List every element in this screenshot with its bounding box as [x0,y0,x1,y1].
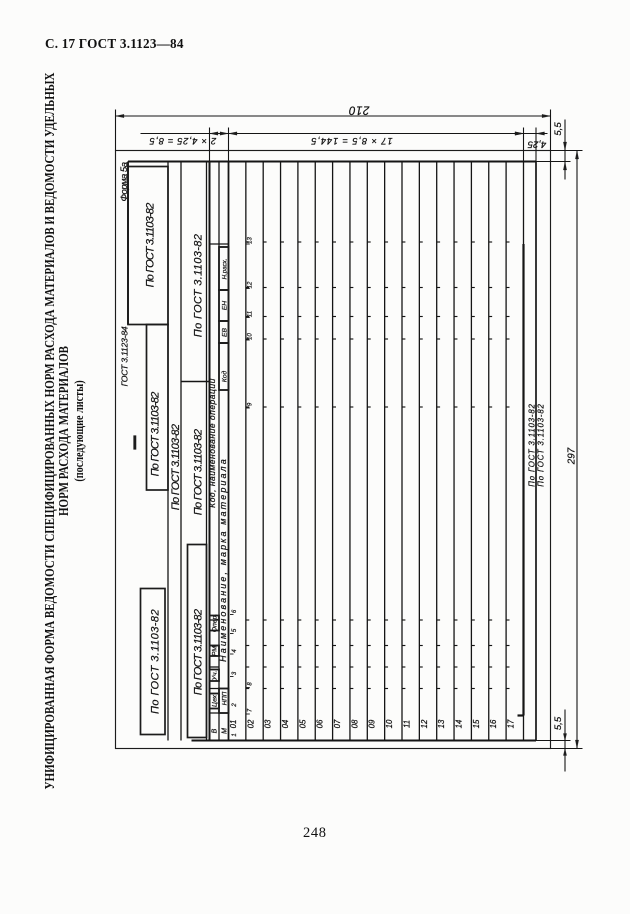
svg-text:03: 03 [264,719,273,728]
svg-text:Код, наименование операции: Код, наименование операции [207,378,217,508]
svg-text:297: 297 [567,447,578,465]
svg-text:16: 16 [489,719,498,728]
svg-text:12: 12 [248,281,254,288]
svg-text:По ГОСТ 3.1103-82: По ГОСТ 3.1103-82 [192,234,204,337]
svg-text:Наименование, марка материала: Наименование, марка материала [218,457,228,662]
svg-text:17 × 8,5 = 144,5: 17 × 8,5 = 144,5 [310,136,392,146]
svg-text:По ГОСТ 3.1103-82: По ГОСТ 3.1103-82 [145,203,157,287]
svg-text:Форма 5а: Форма 5а [119,162,130,201]
svg-text:В: В [212,728,219,733]
svg-text:По ГОСТ 3.1103-82: По ГОСТ 3.1103-82 [527,403,536,487]
svg-text:Код: Код [221,370,229,382]
svg-text:6: 6 [232,609,238,613]
svg-text:ЕВ: ЕВ [222,328,229,338]
svg-text:Уч.: Уч. [212,671,219,682]
svg-text:3: 3 [232,671,238,675]
svg-text:2 × 4,25 = 8,5: 2 × 4,25 = 8,5 [149,136,217,146]
svg-text:9: 9 [248,402,254,406]
svg-text:7: 7 [248,708,254,712]
svg-text:Н.расх.: Н.расх. [222,259,229,280]
svg-text:По ГОСТ 3.1103-82: По ГОСТ 3.1103-82 [192,429,204,515]
svg-text:По ГОСТ 3.1103-82: По ГОСТ 3.1103-82 [537,403,546,487]
svg-text:12: 12 [420,719,429,728]
svg-text:Цех: Цех [212,694,219,707]
svg-text:4: 4 [232,649,238,653]
svg-text:07: 07 [333,719,342,728]
svg-text:08: 08 [350,719,359,728]
svg-text:5,5: 5,5 [553,716,564,730]
svg-text:10: 10 [385,719,394,728]
svg-text:НПП: НПП [222,691,229,705]
svg-text:4,25: 4,25 [527,139,546,150]
svg-text:13: 13 [248,237,254,244]
svg-text:17: 17 [507,719,516,728]
svg-text:01: 01 [229,720,238,729]
svg-text:11: 11 [248,311,254,317]
svg-text:ГОСТ 3.1123-84: ГОСТ 3.1123-84 [120,326,130,386]
svg-text:По ГОСТ 3.1103-82: По ГОСТ 3.1103-82 [150,392,162,476]
svg-text:8: 8 [248,682,254,686]
svg-text:1: 1 [232,733,238,736]
svg-text:13: 13 [437,719,446,728]
svg-text:ЕН: ЕН [222,301,229,311]
svg-text:5: 5 [232,628,238,632]
svg-text:По ГОСТ 3.1103-82: По ГОСТ 3.1103-82 [170,424,182,510]
svg-text:По ГОСТ 3.1103-82: По ГОСТ 3.1103-82 [150,609,162,714]
svg-text:05: 05 [298,719,307,728]
svg-text:09: 09 [368,719,377,728]
svg-text:11: 11 [402,720,411,728]
svg-text:М: М [222,728,229,734]
svg-text:14: 14 [454,719,463,728]
svg-text:10: 10 [248,333,254,340]
svg-text:2: 2 [232,703,238,708]
svg-text:04: 04 [281,719,290,728]
svg-text:06: 06 [316,719,325,728]
svg-text:По ГОСТ 3.1103-82: По ГОСТ 3.1103-82 [192,609,204,695]
svg-text:5,5: 5,5 [553,122,564,136]
svg-text:210: 210 [349,104,371,116]
svg-text:15: 15 [472,719,481,728]
svg-text:02: 02 [246,719,255,728]
